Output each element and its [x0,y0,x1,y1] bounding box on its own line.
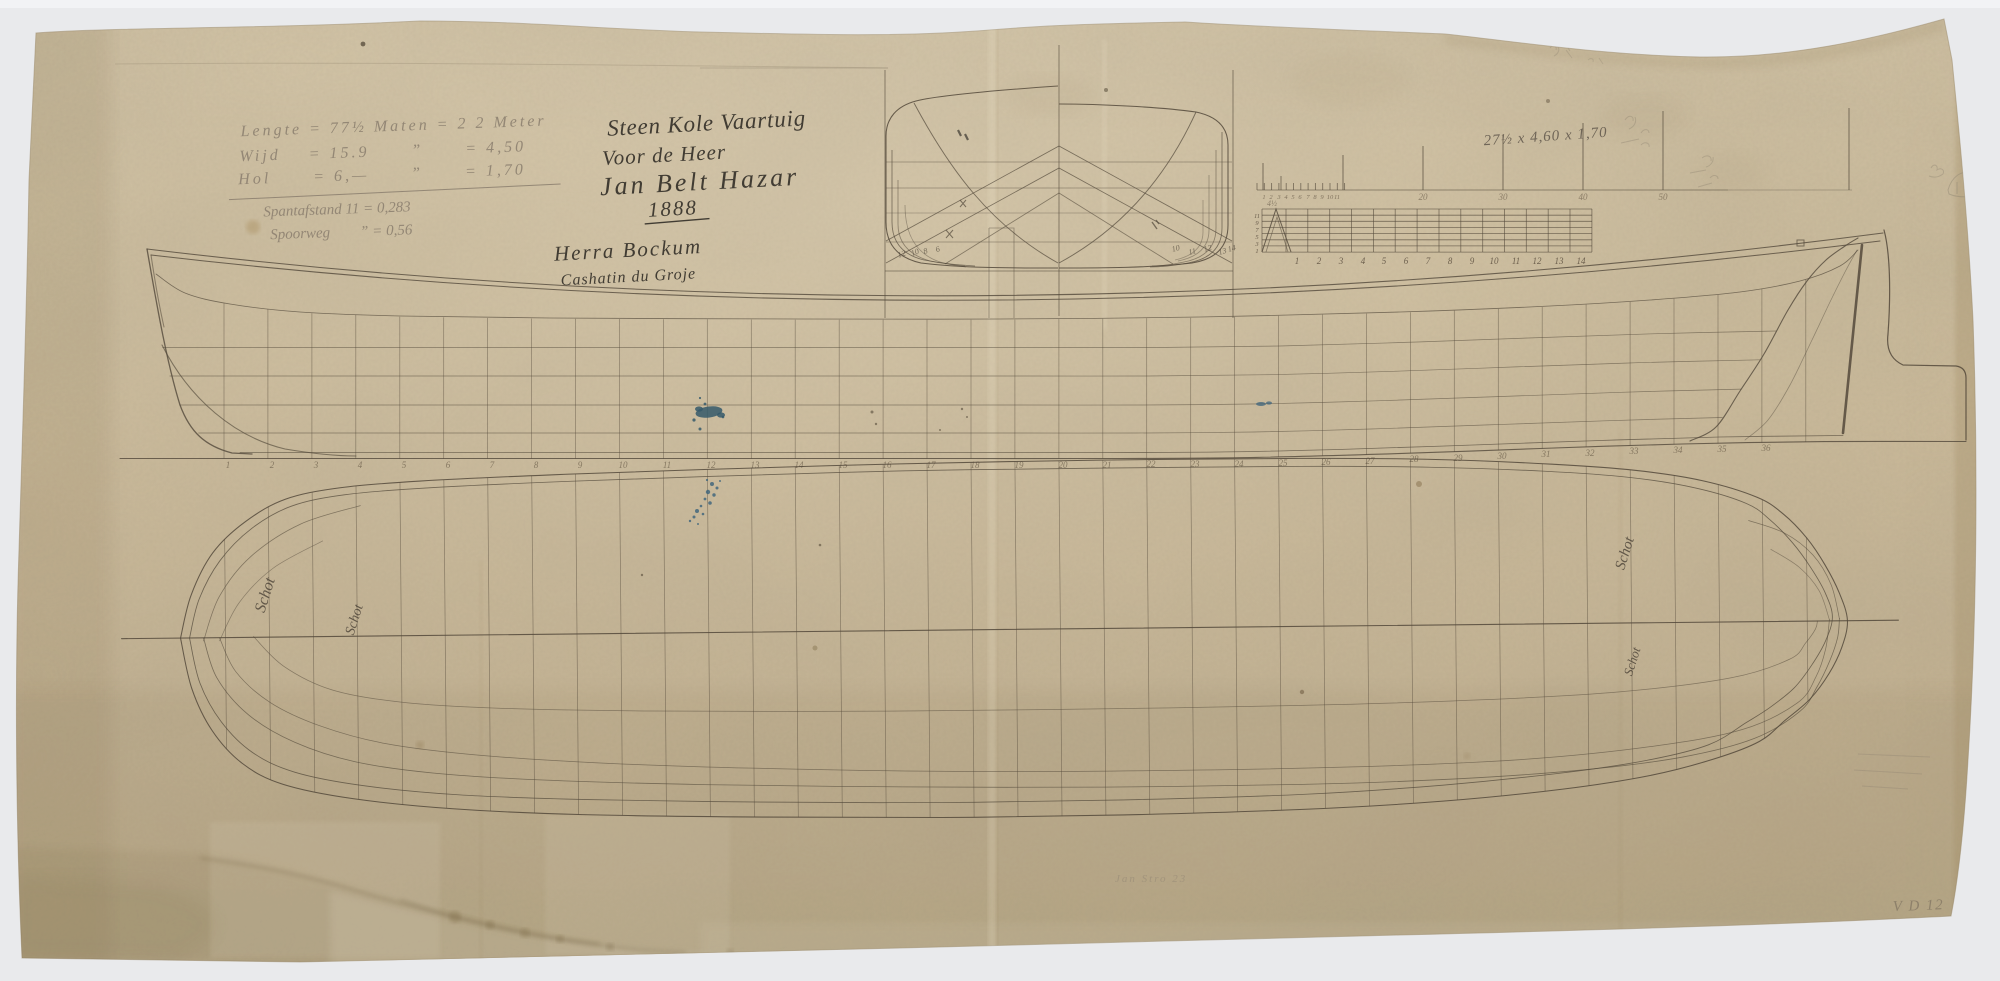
svg-text:4: 4 [358,460,363,470]
svg-text:5: 5 [1382,256,1387,266]
svg-text:11: 11 [663,460,671,470]
svg-text:11: 11 [1254,213,1260,220]
svg-text:6: 6 [1404,256,1409,266]
svg-text:11: 11 [1334,194,1340,201]
svg-text:40: 40 [1579,192,1589,202]
svg-text:4: 4 [1361,256,1366,266]
svg-text:20: 20 [1419,192,1429,202]
svg-text:12: 12 [1533,256,1543,266]
svg-text:33: 33 [1629,446,1640,456]
svg-text:1888: 1888 [647,195,698,222]
svg-text:1: 1 [226,460,231,470]
svg-text:31: 31 [1541,449,1551,459]
svg-text:24: 24 [1235,459,1245,469]
svg-text:1: 1 [1255,248,1258,255]
svg-text:34: 34 [1673,445,1684,455]
svg-text:29: 29 [1454,453,1464,463]
svg-text:3: 3 [313,460,319,470]
svg-text:17: 17 [927,460,937,470]
svg-text:18: 18 [971,460,981,470]
svg-text:30: 30 [1498,192,1509,202]
svg-text:7: 7 [490,460,495,470]
svg-text:2: 2 [270,460,275,470]
svg-text:16: 16 [883,460,893,470]
svg-text:7: 7 [1426,256,1431,266]
svg-text:27: 27 [1366,456,1376,466]
svg-text:10: 10 [619,460,629,470]
svg-text:8: 8 [534,460,539,470]
svg-text:13: 13 [1555,256,1565,266]
svg-text:1: 1 [1262,194,1265,201]
svg-text:11: 11 [1512,256,1520,266]
svg-text:2: 2 [1317,256,1322,266]
svg-text:V D 12: V D 12 [1893,897,1945,915]
svg-text:50: 50 [1659,192,1669,202]
svg-text:30: 30 [1497,451,1508,461]
svg-text:14: 14 [795,460,805,470]
svg-text:4½: 4½ [1267,199,1277,208]
svg-text:10: 10 [1490,256,1500,266]
svg-text:1: 1 [1295,256,1300,266]
svg-text:32: 32 [1585,448,1596,458]
svg-text:36: 36 [1761,443,1772,453]
svg-text:12: 12 [707,460,717,470]
svg-text:14: 14 [1577,256,1587,266]
svg-text:9: 9 [1470,256,1475,266]
svg-text:8: 8 [1448,256,1453,266]
svg-text:9: 9 [578,460,583,470]
svg-text:10: 10 [1327,194,1334,201]
svg-text:5: 5 [402,460,407,470]
svg-text:35: 35 [1717,444,1728,454]
svg-text:3: 3 [1338,256,1344,266]
svg-text:6: 6 [446,460,451,470]
svg-text:Jan Stro 23: Jan Stro 23 [1115,873,1187,885]
